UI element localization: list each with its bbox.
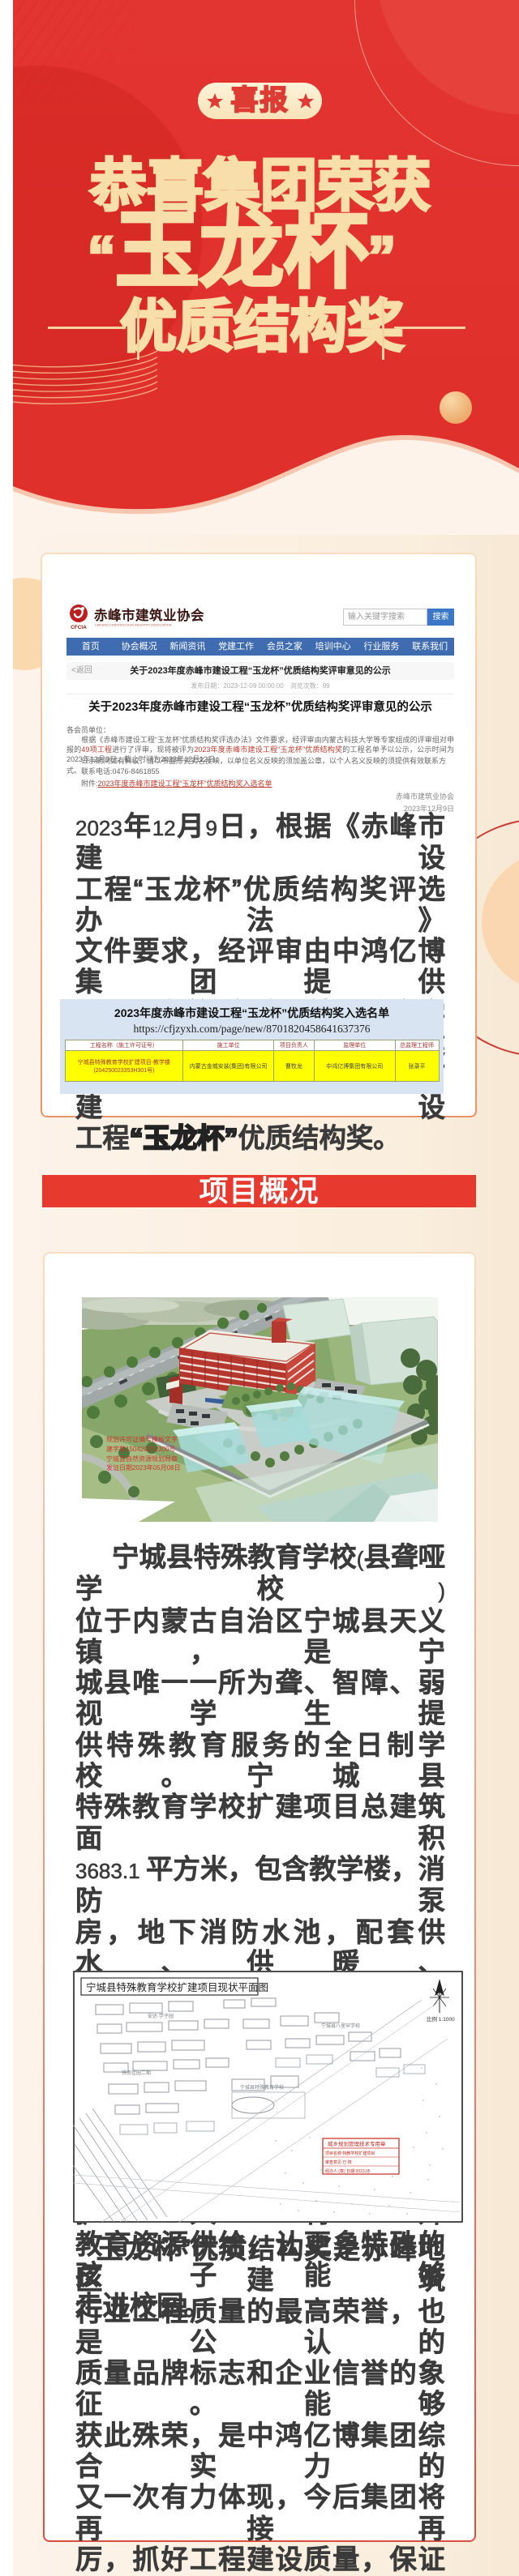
- svg-text:铁南佳园二期: 铁南佳园二期: [122, 2070, 151, 2076]
- svg-text:规划许可证编号模板文字: 规划许可证编号模板文字: [106, 1435, 178, 1443]
- svg-text:宁城县自然资源规划局章: 宁城县自然资源规划局章: [106, 1455, 178, 1463]
- svg-text:发证日期2023年05月08日: 发证日期2023年05月08日: [106, 1463, 181, 1472]
- svg-text:城乡规划管理技术专用章: 城乡规划管理技术专用章: [328, 2140, 386, 2147]
- svg-text:宁城县特殊教育学校扩建项目现状平面图: 宁城县特殊教育学校扩建项目现状平面图: [86, 1981, 268, 1993]
- svg-text:建字第150429202300号: 建字第150429202300号: [106, 1445, 175, 1453]
- svg-text:CHIFENG CONSTRUCTION INDUSTRY: CHIFENG CONSTRUCTION INDUSTRY ASSOCIATIO…: [95, 624, 172, 627]
- svg-text:经办人:(章) 日期:2023.05: 经办人:(章) 日期:2023.05: [325, 2168, 371, 2174]
- svg-text:赤峰市建筑业协会: 赤峰市建筑业协会: [94, 607, 204, 623]
- svg-text:比例 1:1000: 比例 1:1000: [427, 2015, 455, 2023]
- svg-text:安达·学子园: 安达·学子园: [148, 2013, 174, 2019]
- svg-text:CFCIA: CFCIA: [71, 625, 87, 630]
- svg-text:审查意见:已 核: 审查意见:已 核: [325, 2159, 352, 2165]
- svg-text:项目名称:特教学校扩建项目: 项目名称:特教学校扩建项目: [325, 2151, 375, 2156]
- svg-text:宁城县八里罕学校: 宁城县八里罕学校: [321, 2023, 360, 2029]
- svg-text:宁城县特殊教育学校: 宁城县特殊教育学校: [240, 2084, 284, 2091]
